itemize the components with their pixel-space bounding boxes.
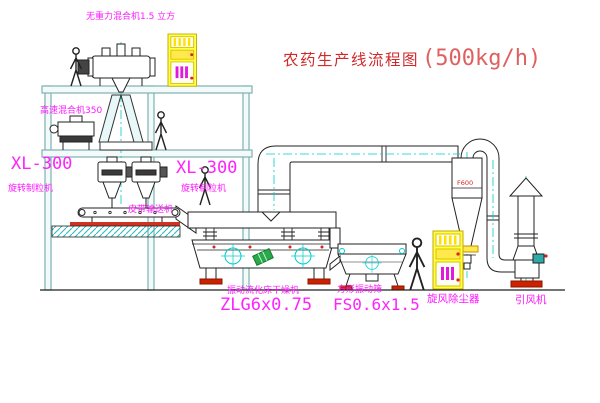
label-cyclone: 旋风除尘器 [427, 294, 480, 305]
label-granulator-mid-model: XL-300 [176, 160, 237, 177]
person-figure [410, 238, 425, 290]
granulator-left [98, 157, 133, 208]
label-belt-conveyor: 皮带输送机 [128, 206, 173, 215]
control-cabinet-top [168, 34, 197, 86]
exhaust-duct [258, 146, 458, 212]
dryer-plenum [176, 206, 336, 240]
label-granulator-mid-name: 旋转制粒机 [181, 185, 226, 194]
label-cyclone-tag: F600 [457, 180, 473, 187]
gravity-free-mixer [78, 44, 155, 92]
exhaust-stack [510, 178, 542, 260]
high-speed-mixer [50, 116, 94, 150]
rain-cap [510, 178, 542, 196]
diagram-title: 农药生产线流程图 (500kg/h) [283, 46, 541, 71]
control-cabinet-ground [433, 231, 463, 289]
label-high-speed-mixer: 高速混合机350 [40, 107, 102, 116]
person-figure [71, 48, 82, 86]
diagram-canvas: 农药生产线流程图 (500kg/h) 无重力混合机1.5 立方 高速混合机350… [0, 0, 600, 403]
label-granulator-left-model: XL-300 [11, 156, 72, 173]
title-text: 农药生产线流程图 [283, 48, 419, 70]
label-dryer-model: ZLG6x0.75 [220, 297, 312, 314]
label-sieve-name: 方形振动筛 [337, 286, 382, 295]
person-figure [156, 112, 167, 150]
square-sieve [330, 228, 406, 290]
title-capacity: (500kg/h) [422, 46, 541, 71]
label-gravity-mixer: 无重力混合机1.5 立方 [86, 13, 175, 22]
label-sieve-model: FS0.6x1.5 [333, 297, 420, 313]
label-granulator-left-name: 旋转制粒机 [8, 185, 53, 194]
label-fan: 引风机 [515, 295, 547, 306]
fluid-bed-dryer [192, 240, 334, 284]
y-chute [99, 95, 152, 150]
conveyor-foundation [52, 222, 180, 237]
